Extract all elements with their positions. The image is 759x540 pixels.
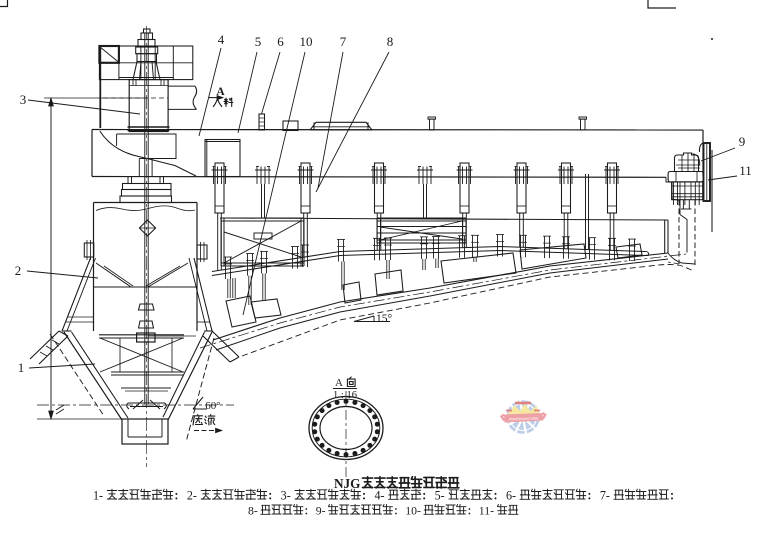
svg-text:2-: 2- (187, 489, 197, 503)
svg-text:9: 9 (739, 134, 746, 149)
svg-text:15°: 15° (376, 313, 393, 325)
svg-text:8: 8 (387, 34, 394, 49)
svg-text:7: 7 (340, 34, 347, 49)
svg-text:1: 1 (18, 360, 25, 375)
svg-text:6-: 6- (506, 489, 516, 503)
svg-text:2: 2 (15, 263, 22, 278)
svg-text:11-: 11- (479, 505, 494, 518)
svg-text:10-: 10- (405, 505, 421, 518)
svg-text:10: 10 (300, 34, 313, 49)
svg-text:NJG: NJG (334, 476, 360, 491)
svg-text:3: 3 (20, 92, 27, 107)
svg-text:4-: 4- (374, 489, 384, 503)
svg-text:9-: 9- (316, 505, 326, 518)
svg-text:11: 11 (739, 163, 752, 178)
svg-text:5-: 5- (435, 489, 445, 503)
svg-text:5: 5 (255, 34, 262, 49)
svg-text:3-: 3- (281, 489, 291, 503)
svg-text:8-: 8- (248, 505, 258, 518)
svg-text:4: 4 (218, 32, 225, 47)
svg-text:A: A (335, 377, 343, 389)
svg-text:60°: 60° (205, 400, 220, 412)
svg-text:7-: 7- (600, 489, 610, 503)
svg-text:1-: 1- (93, 489, 103, 503)
svg-text:6: 6 (277, 34, 284, 49)
